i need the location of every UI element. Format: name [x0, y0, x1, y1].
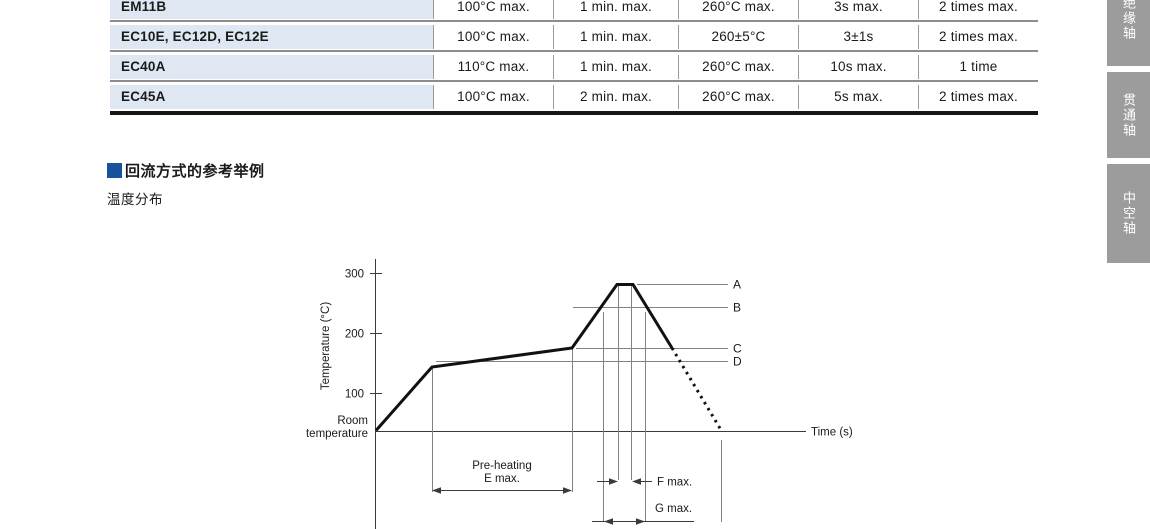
- room-temperature-label-line2: temperature: [306, 428, 368, 440]
- table-cell: 3±1s: [798, 25, 918, 49]
- preheat-label-line1: Pre-heating: [472, 460, 531, 472]
- f-max-label: F max.: [657, 477, 692, 489]
- table-cell: 2 times max.: [918, 25, 1038, 49]
- table-cell: 1 min. max.: [553, 0, 678, 19]
- profile-dotted-segment: [672, 348, 721, 430]
- dimension-lines: [432, 478, 694, 524]
- table-cell: 5s max.: [798, 85, 918, 109]
- table-cell: 2 times max.: [918, 0, 1038, 19]
- table-cell: 110°C max.: [433, 55, 553, 79]
- table-cell: 100°C max.: [433, 0, 553, 19]
- g-arrow-right: [636, 518, 645, 524]
- table-cell: 3s max.: [798, 0, 918, 19]
- part-number-cell: EM11B: [110, 0, 433, 19]
- table-cell: 260±5°C: [678, 25, 798, 49]
- soldering-conditions-table: EM11B 100°C max. 1 min. max. 260°C max. …: [110, 0, 1038, 116]
- table-row: EM11B 100°C max. 1 min. max. 260°C max. …: [110, 0, 1038, 19]
- y-tick-label-100: 100: [345, 389, 364, 401]
- part-number-cell: EC10E, EC12D, EC12E: [110, 25, 433, 49]
- f-arrow-right: [632, 478, 641, 484]
- table-cell: 1 min. max.: [553, 55, 678, 79]
- y-tick-label-300: 300: [345, 269, 364, 281]
- g-max-label: G max.: [655, 503, 692, 515]
- side-tab-insulated-shaft: 绝缘轴: [1107, 0, 1150, 66]
- x-axis-label: Time (s): [811, 427, 853, 439]
- f-arrow-left: [609, 478, 618, 484]
- chart-axes: [370, 259, 806, 529]
- ref-label-d: D: [733, 355, 742, 369]
- table-row: EC45A 100°C max. 2 min. max. 260°C max. …: [110, 85, 1038, 109]
- profile-solid-segment: [376, 285, 672, 431]
- g-arrow-left: [604, 518, 613, 524]
- datasheet-page: EM11B 100°C max. 1 min. max. 260°C max. …: [0, 0, 1150, 529]
- reflow-profile-chart: 300 200 100 Temperature (°C) Room temper…: [280, 245, 870, 529]
- table-bottom-border: [110, 111, 1038, 115]
- table-cell: 10s max.: [798, 55, 918, 79]
- side-tab-through-shaft: 贯通轴: [1107, 72, 1150, 158]
- row-separator: [110, 50, 1038, 52]
- e-arrow-left: [432, 487, 441, 494]
- room-temperature-label-line1: Room: [337, 415, 368, 427]
- table-cell: 1 time: [918, 55, 1038, 79]
- table-cell: 260°C max.: [678, 0, 798, 19]
- row-separator: [110, 80, 1038, 82]
- table-cell: 1 min. max.: [553, 25, 678, 49]
- table-cell: 260°C max.: [678, 55, 798, 79]
- part-number-cell: EC40A: [110, 55, 433, 79]
- section-subtitle: 温度分布: [107, 188, 163, 208]
- row-separator: [110, 20, 1038, 22]
- y-tick-label-200: 200: [345, 329, 364, 341]
- preheat-label-line2: E max.: [484, 473, 520, 485]
- section-heading: 回流方式的参考举例: [107, 160, 265, 181]
- table-row: EC10E, EC12D, EC12E 100°C max. 1 min. ma…: [110, 25, 1038, 49]
- table-cell: 2 min. max.: [553, 85, 678, 109]
- ref-label-a: A: [733, 278, 741, 292]
- blue-square-bullet-icon: [107, 163, 122, 178]
- table-cell: 2 times max.: [918, 85, 1038, 109]
- profile-curve: [376, 285, 721, 431]
- e-arrow-right: [563, 487, 572, 494]
- table-cell: 100°C max.: [433, 25, 553, 49]
- side-tab-hollow-shaft: 中空轴: [1107, 164, 1150, 263]
- section-title: 回流方式的参考举例: [125, 160, 265, 181]
- y-axis-label: Temperature (°C): [320, 302, 332, 390]
- part-number-cell: EC45A: [110, 85, 433, 109]
- ref-label-c: C: [733, 342, 742, 356]
- table-cell: 260°C max.: [678, 85, 798, 109]
- table-row: EC40A 110°C max. 1 min. max. 260°C max. …: [110, 55, 1038, 79]
- table-cell: 100°C max.: [433, 85, 553, 109]
- ref-label-b: B: [733, 301, 741, 315]
